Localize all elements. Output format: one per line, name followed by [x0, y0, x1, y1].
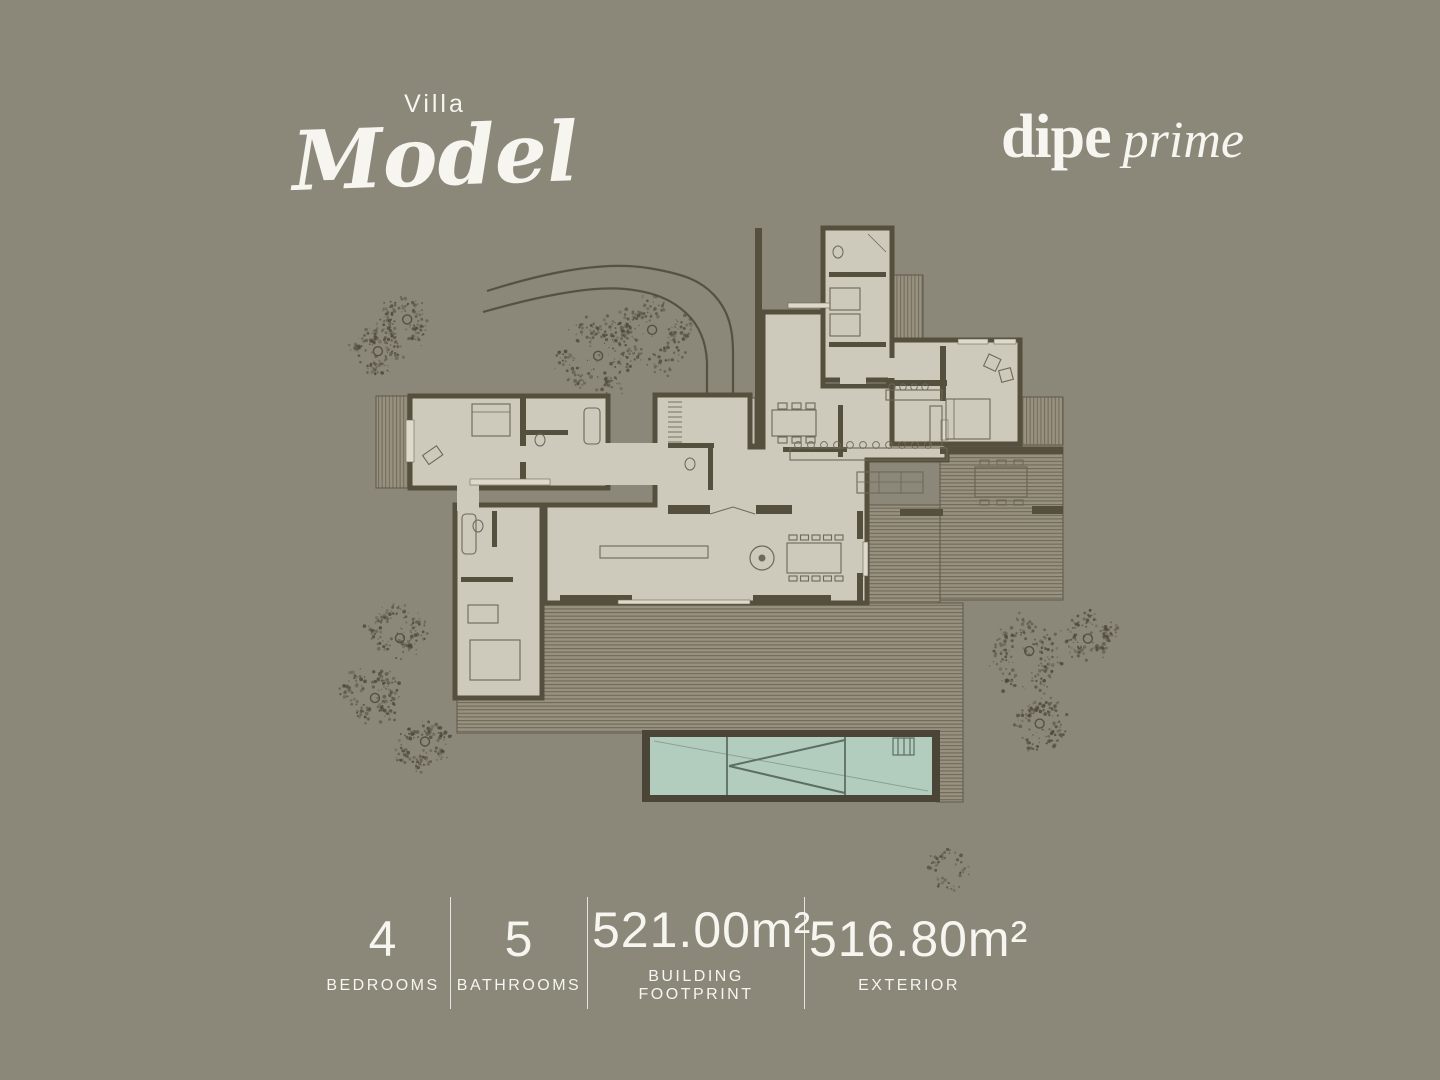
stat-bathrooms-value: 5	[455, 912, 583, 967]
stat-exterior-value: 516.80m²	[809, 912, 1009, 967]
stat-bathrooms-label: BATHROOMS	[455, 977, 583, 995]
stat-footprint-value: 521.00m²	[592, 903, 800, 958]
presentation-board: Villa Model dipe prime 4 BEDROOMS 5 BATH…	[0, 0, 1440, 1080]
brand-tagline: prime	[1123, 115, 1244, 167]
brand-name: dipe	[1001, 106, 1111, 168]
title-block: Villa Model	[285, 92, 585, 197]
brand-logo: dipe prime	[1001, 106, 1244, 168]
model-title: Model	[284, 114, 587, 202]
stat-exterior-label: EXTERIOR	[809, 977, 1009, 995]
stat-exterior: 516.80m² EXTERIOR	[805, 897, 1013, 1009]
stat-footprint: 521.00m² BUILDING FOOTPRINT	[588, 897, 804, 1009]
stat-bedrooms: 4 BEDROOMS	[316, 897, 450, 1009]
stat-footprint-label: BUILDING FOOTPRINT	[592, 968, 800, 1004]
stat-bedrooms-value: 4	[320, 912, 446, 967]
stats-bar: 4 BEDROOMS 5 BATHROOMS 521.00m² BUILDING…	[316, 897, 1013, 1009]
stat-bedrooms-label: BEDROOMS	[320, 977, 446, 995]
stat-bathrooms: 5 BATHROOMS	[451, 897, 587, 1009]
